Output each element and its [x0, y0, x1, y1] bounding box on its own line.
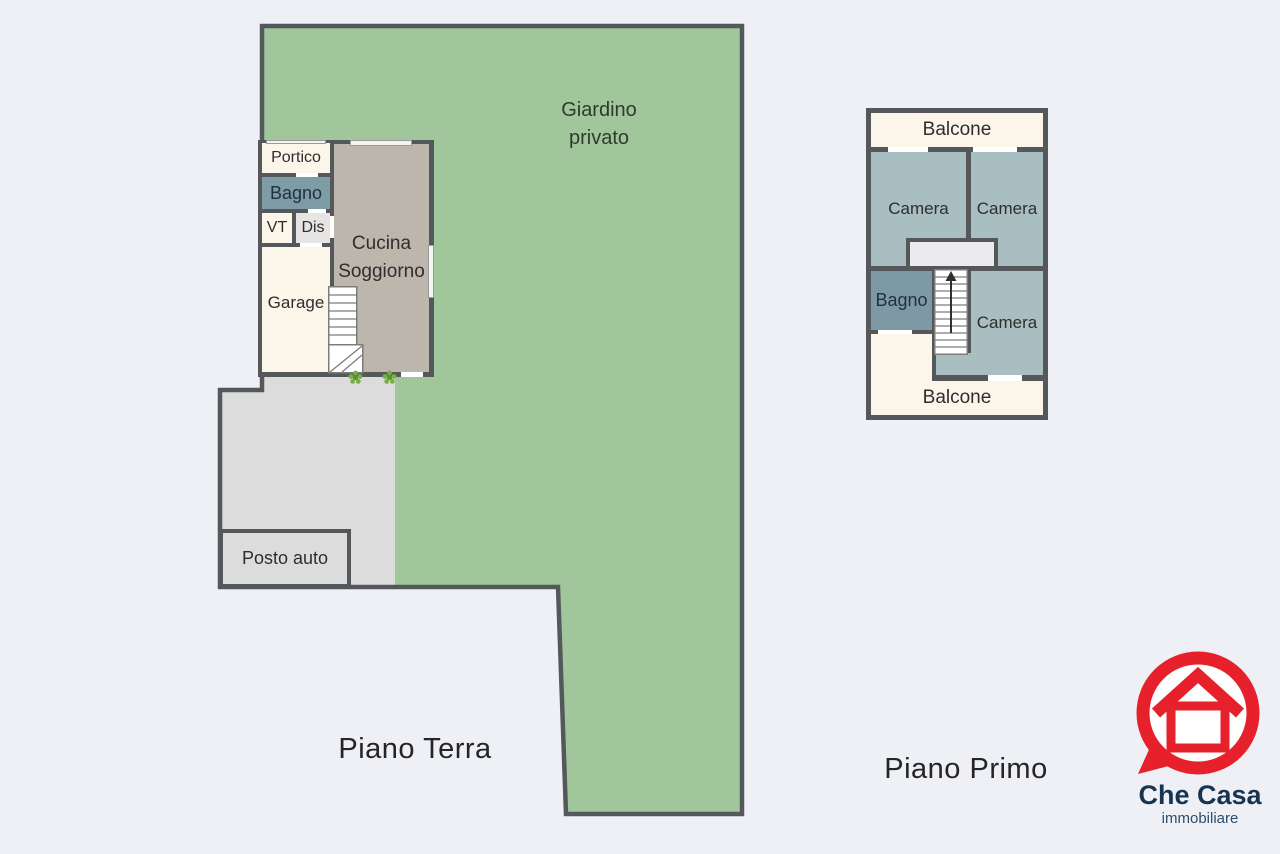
door-cucina-garden: [401, 372, 423, 377]
room-label-line2: Soggiorno: [338, 261, 425, 282]
garden-label: Giardino privato: [519, 96, 679, 152]
room-label: Posto auto: [242, 548, 328, 569]
room-dis: Dis: [296, 213, 330, 243]
room-posto-auto: Posto auto: [221, 531, 349, 586]
ground-floor-title-text: Piano Terra: [338, 733, 491, 765]
window-balcone-camera-right: [973, 147, 1017, 152]
room-label: Camera: [977, 313, 1037, 333]
room-portico: Portico: [262, 143, 330, 173]
room-camera-bottom-extension: [936, 353, 971, 375]
brand-logo-icon: [1130, 647, 1270, 783]
room-label: Balcone: [923, 387, 992, 409]
first-floor-title-text: Piano Primo: [884, 753, 1047, 785]
floorplan-canvas: Giardino privato Posto auto Portico Bagn…: [0, 0, 1280, 854]
room-label: Portico: [271, 149, 321, 167]
plant-icon: [348, 370, 363, 385]
room-label: Camera: [977, 199, 1037, 219]
room-label: Camera: [888, 199, 948, 219]
room-bagno-gf: Bagno: [262, 177, 330, 209]
room-label: Dis: [301, 219, 324, 237]
room-label: VT: [267, 219, 287, 237]
room-label: Bagno: [270, 183, 322, 204]
stair-landing: [906, 238, 998, 270]
window-cucina-right: [428, 245, 434, 298]
stairs-icon-ff: [934, 269, 968, 355]
garden-label-line1: Giardino: [561, 99, 637, 121]
first-floor-title: Piano Primo: [871, 753, 1061, 786]
door-dis-garage: [300, 243, 322, 247]
room-camera-bottom: Camera: [971, 271, 1043, 375]
terrace-under-bagno: [871, 334, 932, 381]
door-portico-bagno: [296, 173, 318, 177]
room-vt: VT: [262, 213, 292, 243]
window-bagno-bottom: [878, 330, 912, 334]
stairs-icon-gf: [328, 286, 368, 376]
plant-icon: [382, 370, 397, 385]
room-label: Balcone: [923, 119, 992, 141]
room-garage: Garage: [262, 247, 330, 372]
room-balcone-top: Balcone: [871, 113, 1043, 147]
room-balcone-bottom: Balcone: [871, 381, 1043, 415]
room-label: Bagno: [875, 290, 927, 311]
window-cucina-top: [350, 140, 412, 146]
room-bagno-ff: Bagno: [871, 271, 932, 330]
window-balcone-camera-left: [888, 147, 928, 152]
portico-open-edge: [266, 140, 326, 144]
brand-tagline: immobiliare: [1125, 810, 1275, 827]
brand-logo-text: Che Casa immobiliare: [1125, 781, 1275, 827]
property-outline: [0, 0, 800, 854]
door-camera-balcone-bottom: [988, 375, 1022, 381]
garden-label-line2: privato: [569, 127, 629, 149]
door-bagno-dis: [308, 209, 326, 213]
door-dis-cucina: [330, 216, 334, 238]
room-label: Garage: [268, 293, 325, 313]
brand-name: Che Casa: [1125, 781, 1275, 809]
room-label-line1: Cucina: [352, 233, 411, 254]
ground-floor-title: Piano Terra: [320, 733, 510, 766]
